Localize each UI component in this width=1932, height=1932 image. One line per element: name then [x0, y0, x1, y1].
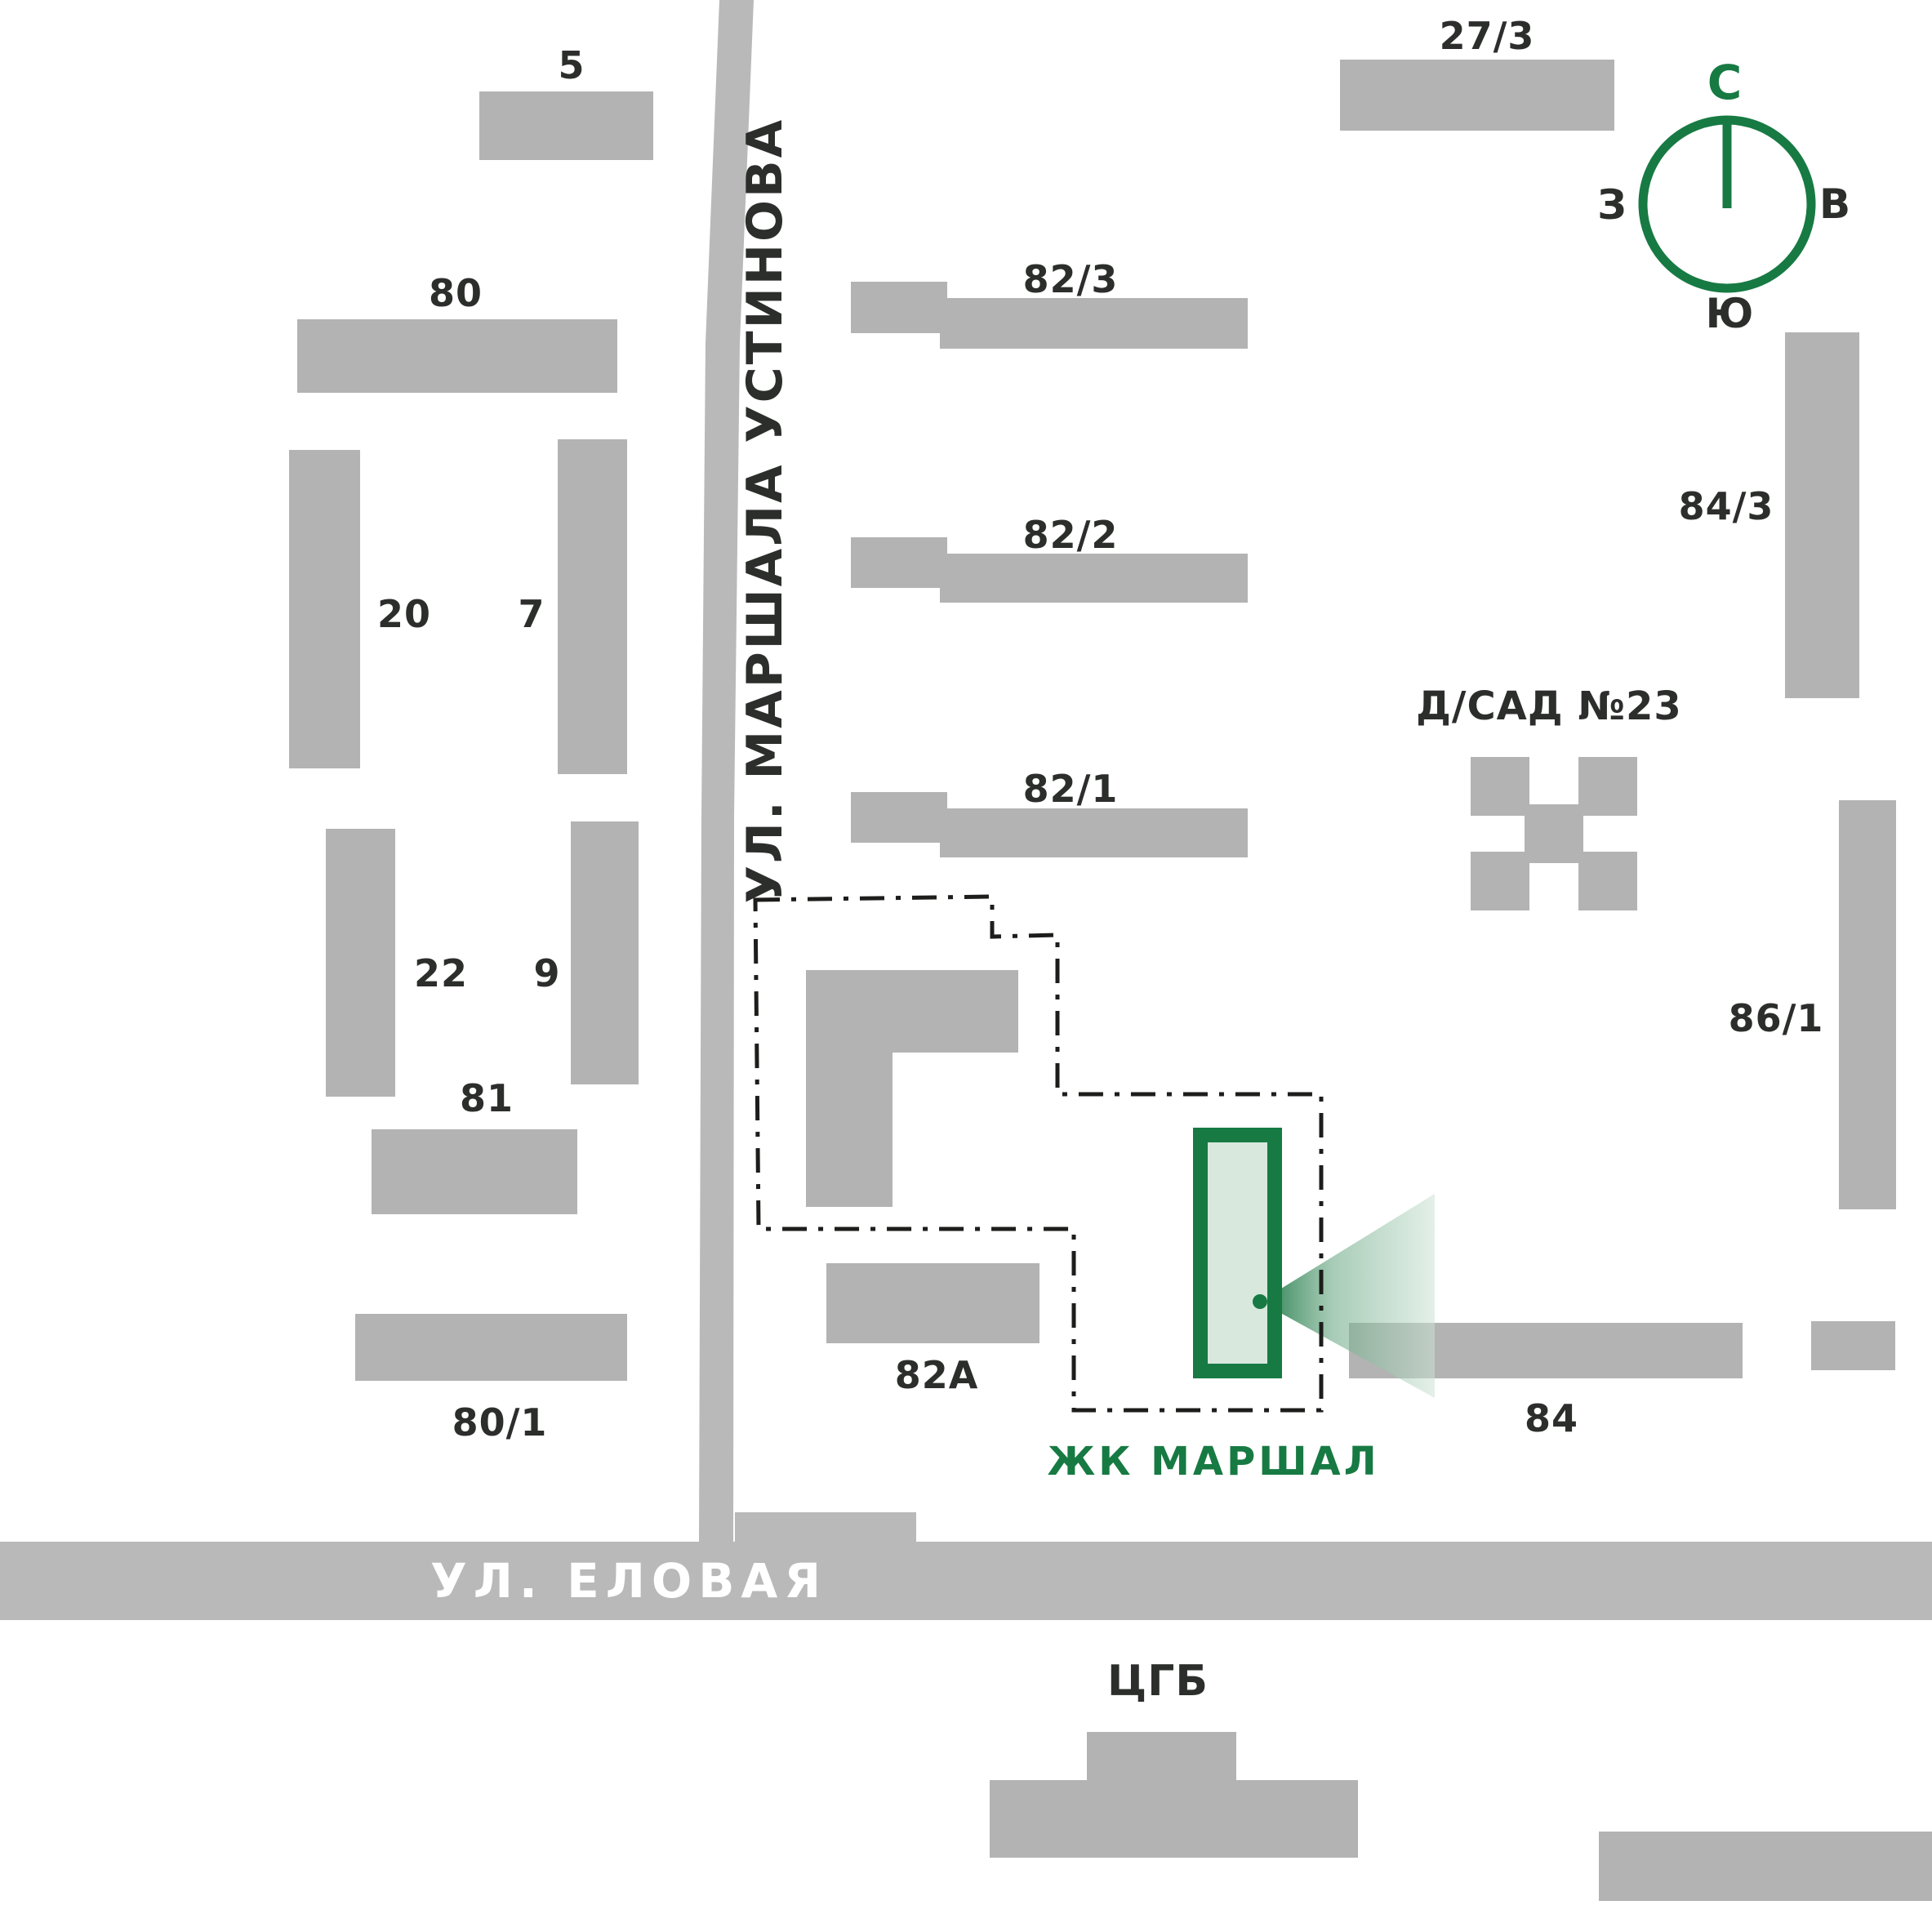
street-label-yelovaya: УЛ. ЕЛОВАЯ: [430, 1557, 827, 1605]
building-label-9: 9: [533, 955, 560, 992]
compass-east-letter: В: [1819, 184, 1850, 225]
compass-south-letter: Ю: [1706, 293, 1754, 334]
building-label-7: 7: [518, 595, 545, 633]
building-label-20: 20: [377, 595, 431, 633]
site-plan-map: УЛ. ЕЛОВАЯ УЛ. МАРШАЛА УСТИНОВА ЖК МАРША…: [0, 0, 1932, 1932]
building-label-86-1: 86/1: [1729, 999, 1824, 1037]
complex-label: ЖК МАРШАЛ: [1047, 1442, 1379, 1481]
building-label-cgb: ЦГБ: [1107, 1660, 1209, 1703]
compass-west-letter: З: [1597, 185, 1627, 225]
building-label-kindergarten: Д/САД №23: [1416, 687, 1682, 726]
building-label-22: 22: [414, 955, 468, 992]
building-label-5: 5: [558, 47, 585, 84]
building-label-82-3: 82/3: [1023, 260, 1119, 298]
building-label-27-3: 27/3: [1440, 17, 1535, 55]
building-label-84-3: 84/3: [1679, 487, 1774, 525]
labels-layer: УЛ. ЕЛОВАЯ УЛ. МАРШАЛА УСТИНОВА ЖК МАРША…: [0, 0, 1932, 1932]
building-label-80-1: 80/1: [452, 1404, 548, 1441]
building-label-80: 80: [429, 274, 483, 312]
building-label-81: 81: [460, 1080, 514, 1117]
building-label-82-1: 82/1: [1023, 770, 1119, 808]
compass-north-letter: С: [1707, 59, 1743, 106]
building-label-84: 84: [1525, 1400, 1578, 1437]
street-label-ustinova: УЛ. МАРШАЛА УСТИНОВА: [741, 118, 790, 903]
building-label-82a: 82А: [895, 1356, 979, 1394]
building-label-82-2: 82/2: [1023, 516, 1119, 554]
